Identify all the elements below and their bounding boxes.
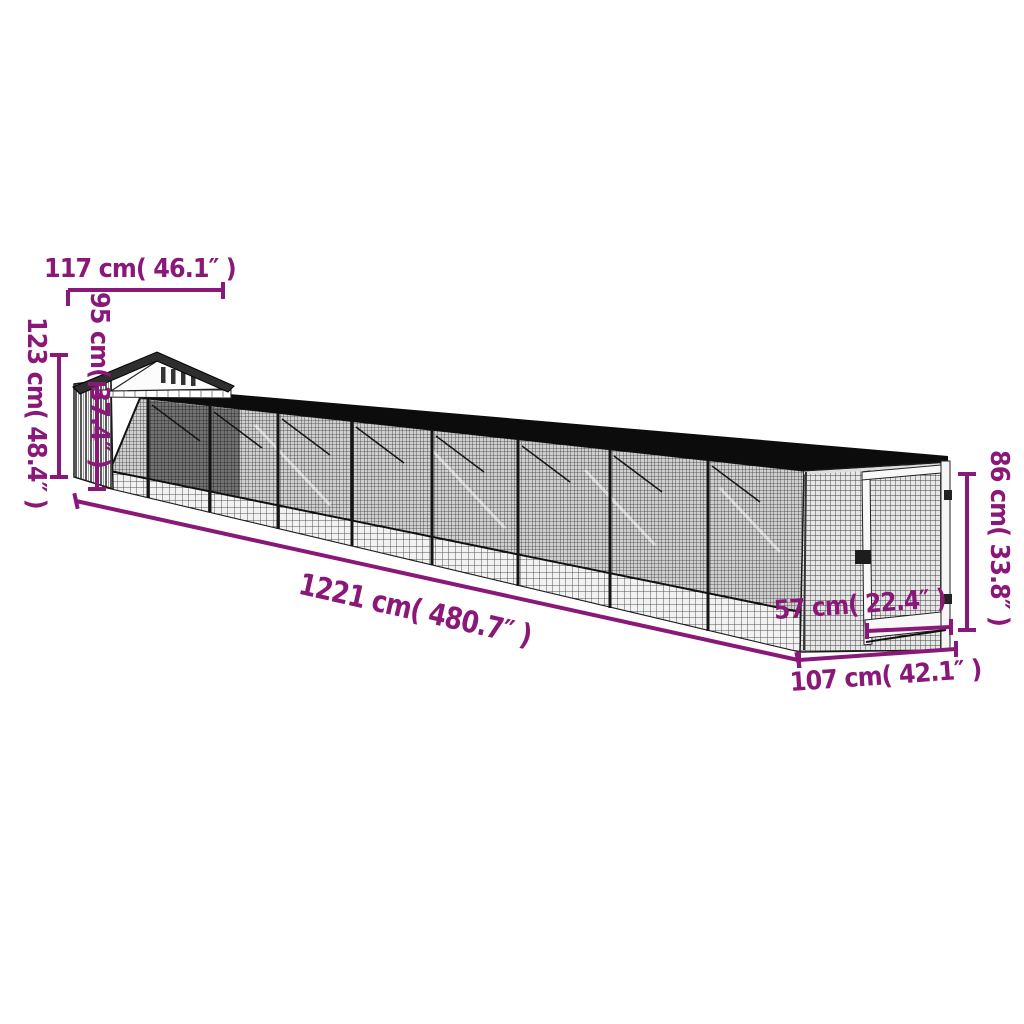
dim-line-total-height bbox=[50, 355, 68, 477]
corner-post bbox=[941, 461, 950, 650]
product-dimension-diagram: 117 cm( 46.1″ ) 95 cm( 37.4″ ) 123 cm( 4… bbox=[0, 0, 1024, 1024]
hinge-icon bbox=[944, 490, 952, 500]
dim-label-house-width: 117 cm( 46.1″ ) bbox=[44, 255, 236, 284]
dim-label-wall-height: 95 cm( 37.4″ ) bbox=[84, 292, 113, 468]
dim-label-total-height: 123 cm( 48.4″ ) bbox=[21, 317, 50, 509]
run-end-door-face bbox=[800, 461, 952, 652]
door-latch bbox=[855, 550, 871, 564]
coop-illustration bbox=[0, 0, 1024, 1024]
dim-line-run-height bbox=[958, 474, 976, 630]
dim-label-run-height: 86 cm( 33.8″ ) bbox=[984, 450, 1013, 626]
